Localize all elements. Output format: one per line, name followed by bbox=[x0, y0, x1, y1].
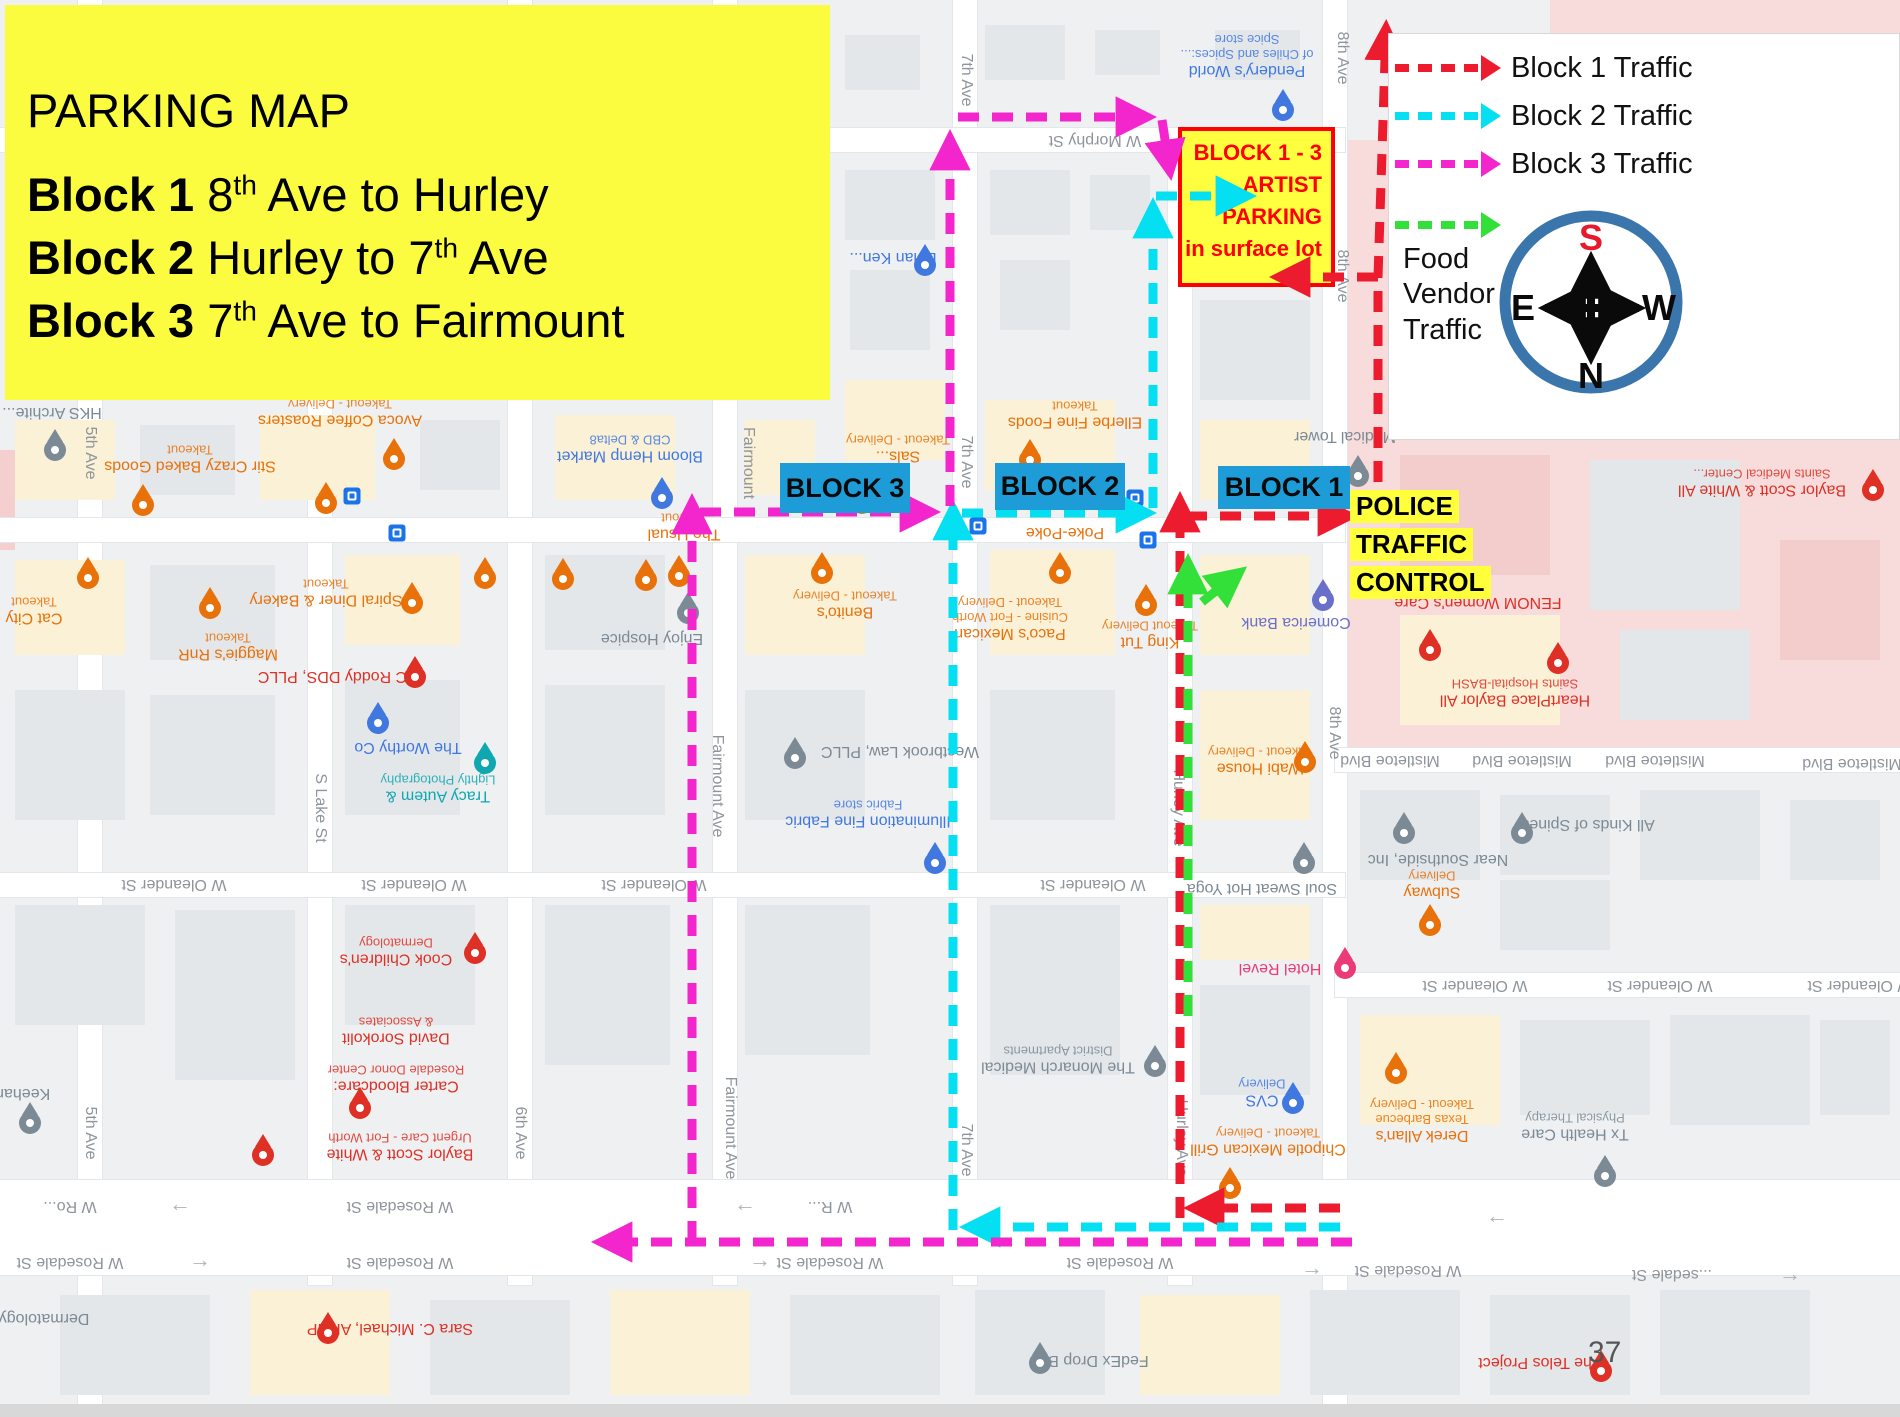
food-vendor-line: Food bbox=[1403, 242, 1495, 277]
police-line: POLICE bbox=[1350, 490, 1459, 523]
compass-north: N bbox=[1578, 355, 1604, 396]
legend-dash-line bbox=[1395, 112, 1481, 120]
block-chip: BLOCK 3 bbox=[780, 463, 910, 513]
block-chip: BLOCK 1 bbox=[1218, 466, 1350, 509]
bottom-bar bbox=[0, 1404, 1900, 1417]
compass: S N E W bbox=[1491, 202, 1691, 407]
page-title: PARKING MAP bbox=[27, 83, 350, 138]
legend: Block 1 TrafficBlock 2 TrafficBlock 3 Tr… bbox=[1388, 33, 1900, 440]
police-traffic-control-label: POLICE TRAFFIC CONTROL bbox=[1350, 490, 1491, 604]
legend-item: Block 2 Traffic bbox=[1395, 101, 1693, 131]
legend-arrow-icon bbox=[1481, 103, 1501, 129]
legend-item-label: Block 1 Traffic bbox=[1511, 52, 1693, 85]
legend-item-label: Block 2 Traffic bbox=[1511, 100, 1693, 133]
block1-range: Block 1 8th Ave to Hurley bbox=[27, 167, 549, 222]
title-box: PARKING MAP Block 1 8th Ave to Hurley Bl… bbox=[5, 5, 830, 400]
legend-arrow-icon bbox=[1481, 55, 1501, 81]
block-chip: BLOCK 2 bbox=[995, 463, 1125, 510]
police-line: CONTROL bbox=[1350, 566, 1491, 599]
legend-item-label: Block 3 Traffic bbox=[1511, 148, 1693, 181]
food-vendor-traffic-label: Food Vendor Traffic bbox=[1403, 242, 1495, 348]
route-magenta-dashes bbox=[1162, 120, 1170, 172]
legend-item: Block 1 Traffic bbox=[1395, 53, 1693, 83]
page-number: 37 bbox=[1588, 1336, 1621, 1370]
block3-range: Block 3 7th Ave to Fairmount bbox=[27, 293, 624, 348]
legend-dash-line bbox=[1395, 64, 1481, 72]
legend-arrow-icon bbox=[1481, 151, 1501, 177]
police-line: TRAFFIC bbox=[1350, 528, 1473, 561]
compass-south: S bbox=[1579, 217, 1603, 258]
legend-dash-line bbox=[1395, 160, 1481, 168]
legend-dash-line bbox=[1395, 221, 1481, 229]
route-green-dashes bbox=[1202, 572, 1240, 602]
food-vendor-line: Vendor bbox=[1403, 277, 1495, 312]
food-vendor-line: Traffic bbox=[1403, 313, 1495, 348]
route-red-dashes bbox=[1378, 28, 1386, 277]
legend-item: Block 3 Traffic bbox=[1395, 149, 1693, 179]
block2-range: Block 2 Hurley to 7th Ave bbox=[27, 230, 549, 285]
compass-west: W bbox=[1642, 287, 1676, 328]
compass-east: E bbox=[1511, 287, 1535, 328]
